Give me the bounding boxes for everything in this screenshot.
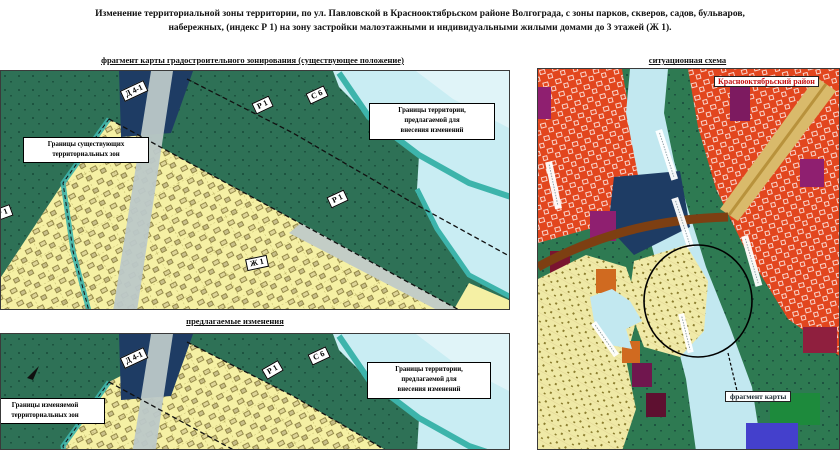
callout-existing-zone-borders: Границы существующих территориальных зон — [23, 137, 149, 163]
callout-change-area-borders: Границы территории, предлагаемой для вне… — [367, 362, 491, 399]
situational-scheme-map: Краснооктябрьский район фрагмент карты — [537, 68, 840, 450]
callout-changed-zone-borders: Границы изменяемой территориальных зон — [0, 398, 105, 424]
heading-proposed-map: предлагаемые изменения — [0, 316, 470, 326]
title-line-1: Изменение территориальной зоны территори… — [0, 8, 840, 22]
district-label: Краснооктябрьский район — [714, 76, 819, 87]
proposed-zoning-map: Д 4-1 Р 1 С 6 Границы изменяемой террито… — [0, 333, 510, 450]
existing-zoning-map: Д 4-1 Р 1 С 6 Р 1 Ж 1 Р 1 Границы сущест… — [0, 70, 510, 310]
callout-change-area-borders: Границы территории, предлагаемой для вне… — [369, 103, 495, 140]
map-fragment-label: фрагмент карты — [725, 391, 791, 402]
heading-situational-map: ситуационная схема — [535, 55, 840, 65]
document-title: Изменение территориальной зоны территори… — [0, 8, 840, 36]
title-line-2: набережных, (индекс Р 1) на зону застрой… — [0, 22, 840, 36]
zoning-document-page: Изменение территориальной зоны территори… — [0, 0, 840, 450]
heading-existing-map: фрагмент карты градостроительного зониро… — [0, 55, 505, 65]
situational-map-canvas — [538, 69, 840, 450]
